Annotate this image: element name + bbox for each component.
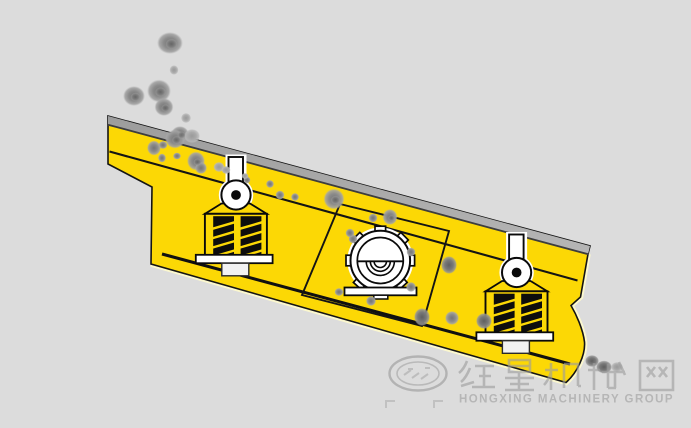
svg-text:HONGXING MACHINERY GROUP: HONGXING MACHINERY GROUP <box>459 394 674 406</box>
